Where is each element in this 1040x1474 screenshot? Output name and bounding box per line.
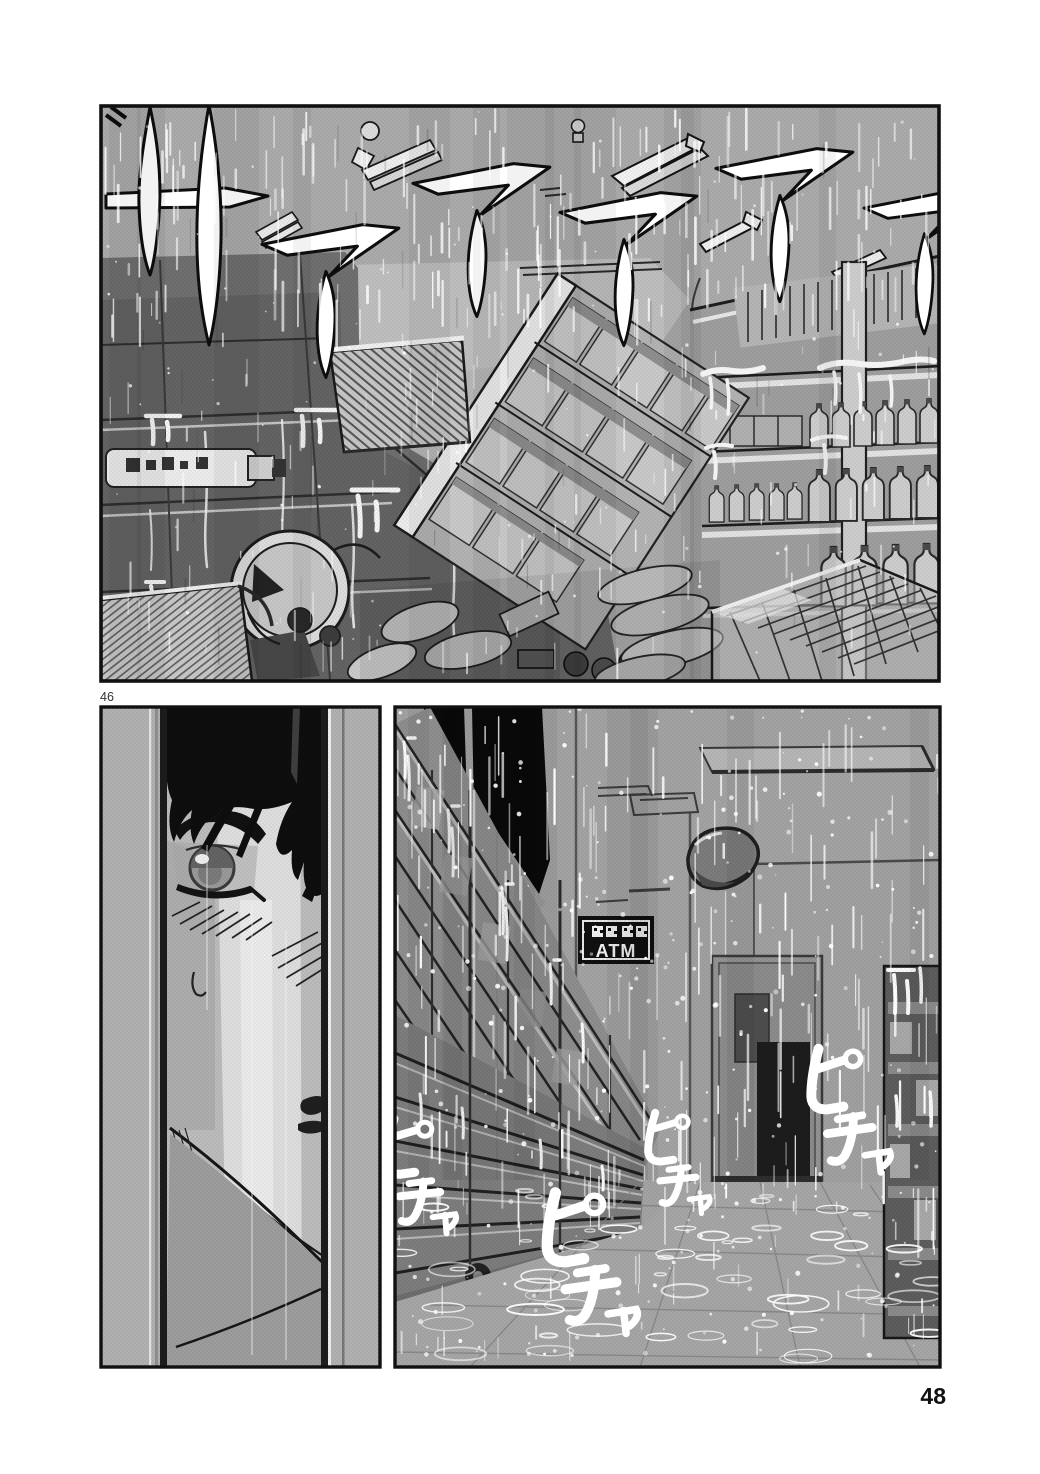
svg-text:48: 48: [920, 1383, 946, 1409]
svg-text:46: 46: [100, 690, 114, 704]
